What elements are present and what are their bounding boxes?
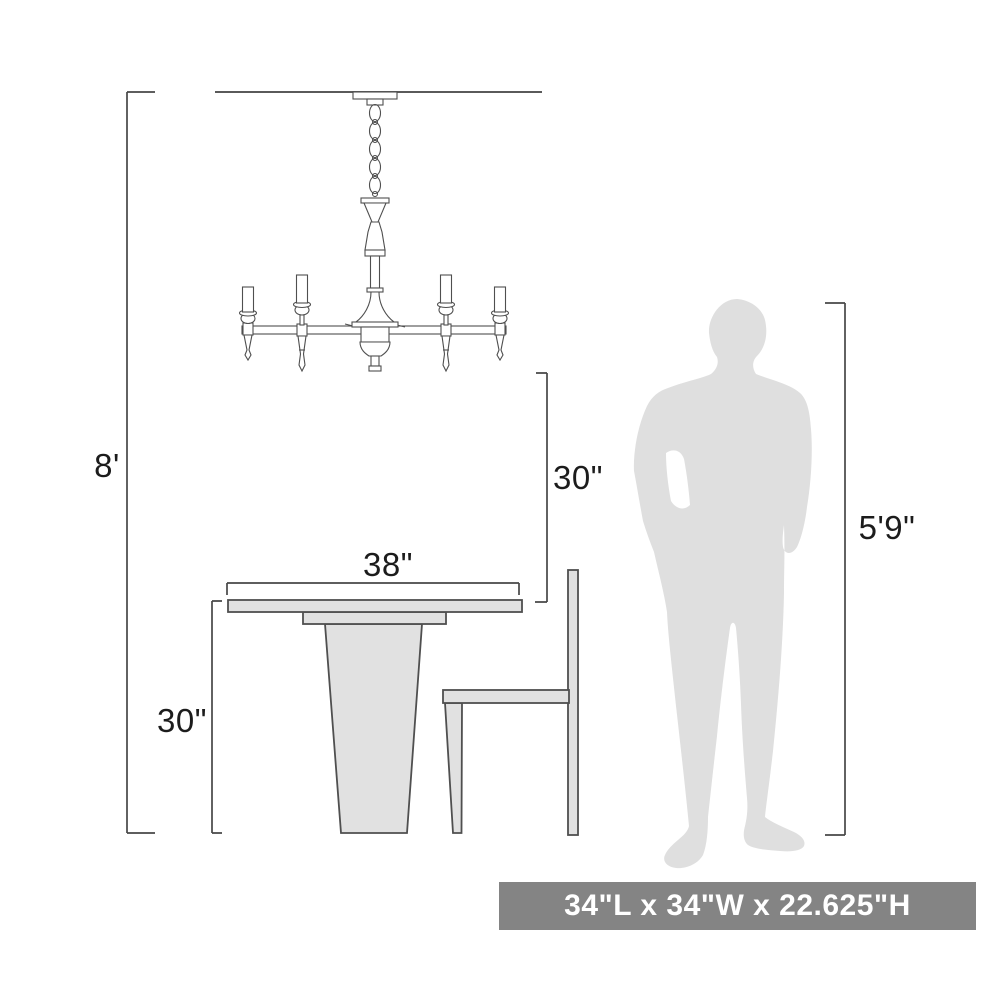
chandelier-drawing xyxy=(240,92,509,371)
person-height-label: 5'9" xyxy=(859,511,916,544)
person-silhouette xyxy=(634,299,812,868)
table-height-label: 30" xyxy=(157,704,207,737)
size-banner-text: 34"L x 34"W x 22.625"H xyxy=(564,889,911,923)
candle-outer-right xyxy=(492,287,509,360)
ceiling-height-label: 8' xyxy=(94,449,120,482)
table-width-label: 38" xyxy=(363,548,413,581)
dim-hang-height-line xyxy=(535,373,547,602)
hang-height-label: 30" xyxy=(553,461,603,494)
dim-ceiling-height-line xyxy=(127,92,155,833)
candle-inner-left xyxy=(294,275,311,371)
candle-inner-right xyxy=(438,275,455,371)
dim-person-height-line xyxy=(825,303,845,835)
dining-table-drawing xyxy=(228,600,522,833)
dim-table-height-line xyxy=(212,601,222,833)
dim-table-width-line xyxy=(227,583,519,595)
size-banner: 34"L x 34"W x 22.625"H xyxy=(499,882,976,930)
dimension-diagram: 8' 30" 38" 30" 5'9" 34"L x 34"W x 22.625… xyxy=(0,0,1000,1000)
candle-outer-left xyxy=(240,287,257,360)
diagram-artwork xyxy=(0,0,1000,1000)
